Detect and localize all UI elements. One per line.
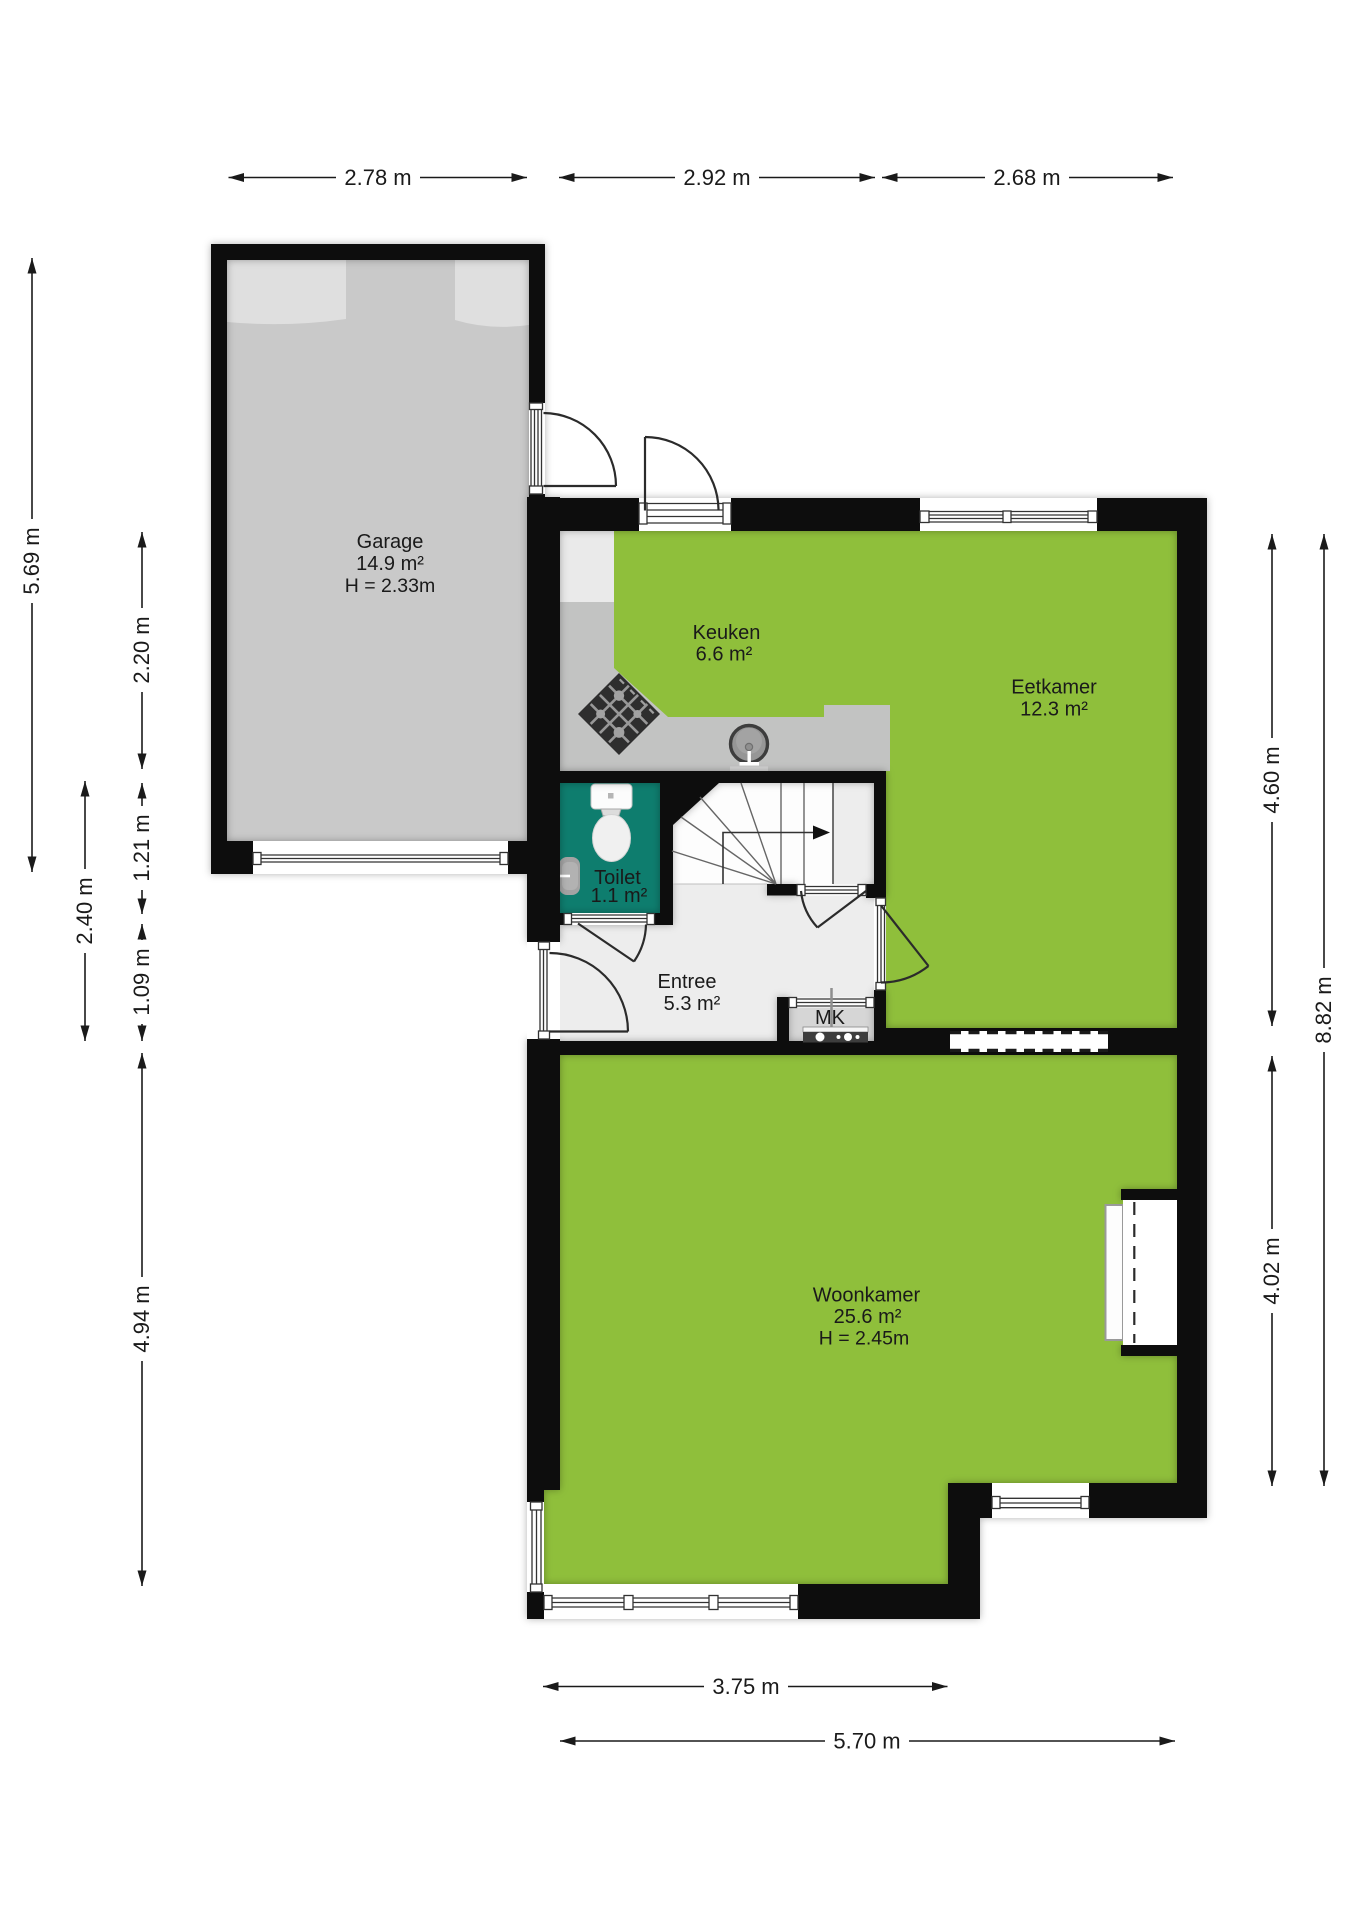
- svg-text:5.69 m: 5.69 m: [19, 527, 44, 594]
- svg-text:Entree: Entree: [658, 971, 717, 993]
- svg-text:5.3 m²: 5.3 m²: [664, 993, 721, 1015]
- svg-text:4.94 m: 4.94 m: [129, 1285, 154, 1352]
- svg-text:3.75 m: 3.75 m: [712, 1674, 779, 1699]
- svg-text:14.9 m²: 14.9 m²: [356, 553, 424, 575]
- svg-text:5.70 m: 5.70 m: [833, 1729, 900, 1754]
- svg-text:Woonkamer: Woonkamer: [813, 1285, 921, 1307]
- svg-text:2.40 m: 2.40 m: [72, 877, 97, 944]
- svg-text:H = 2.33m: H = 2.33m: [345, 575, 436, 597]
- svg-text:1.09 m: 1.09 m: [129, 948, 154, 1015]
- svg-text:Keuken: Keuken: [693, 622, 761, 644]
- svg-text:8.82 m: 8.82 m: [1311, 976, 1336, 1043]
- svg-text:6.6 m²: 6.6 m²: [696, 644, 753, 666]
- svg-text:25.6 m²: 25.6 m²: [834, 1306, 902, 1328]
- svg-text:Eetkamer: Eetkamer: [1011, 677, 1097, 699]
- svg-text:12.3 m²: 12.3 m²: [1020, 699, 1088, 721]
- svg-text:4.02 m: 4.02 m: [1259, 1237, 1284, 1304]
- svg-text:MK: MK: [815, 1007, 846, 1029]
- svg-text:2.78 m: 2.78 m: [344, 165, 411, 190]
- svg-text:2.20 m: 2.20 m: [129, 616, 154, 683]
- svg-text:1.1 m²: 1.1 m²: [591, 885, 648, 907]
- svg-text:H = 2.45m: H = 2.45m: [819, 1328, 910, 1350]
- svg-text:1.21 m: 1.21 m: [129, 814, 154, 881]
- svg-text:Garage: Garage: [357, 531, 424, 553]
- svg-text:4.60 m: 4.60 m: [1259, 746, 1284, 813]
- svg-text:2.92 m: 2.92 m: [683, 165, 750, 190]
- svg-text:2.68 m: 2.68 m: [993, 165, 1060, 190]
